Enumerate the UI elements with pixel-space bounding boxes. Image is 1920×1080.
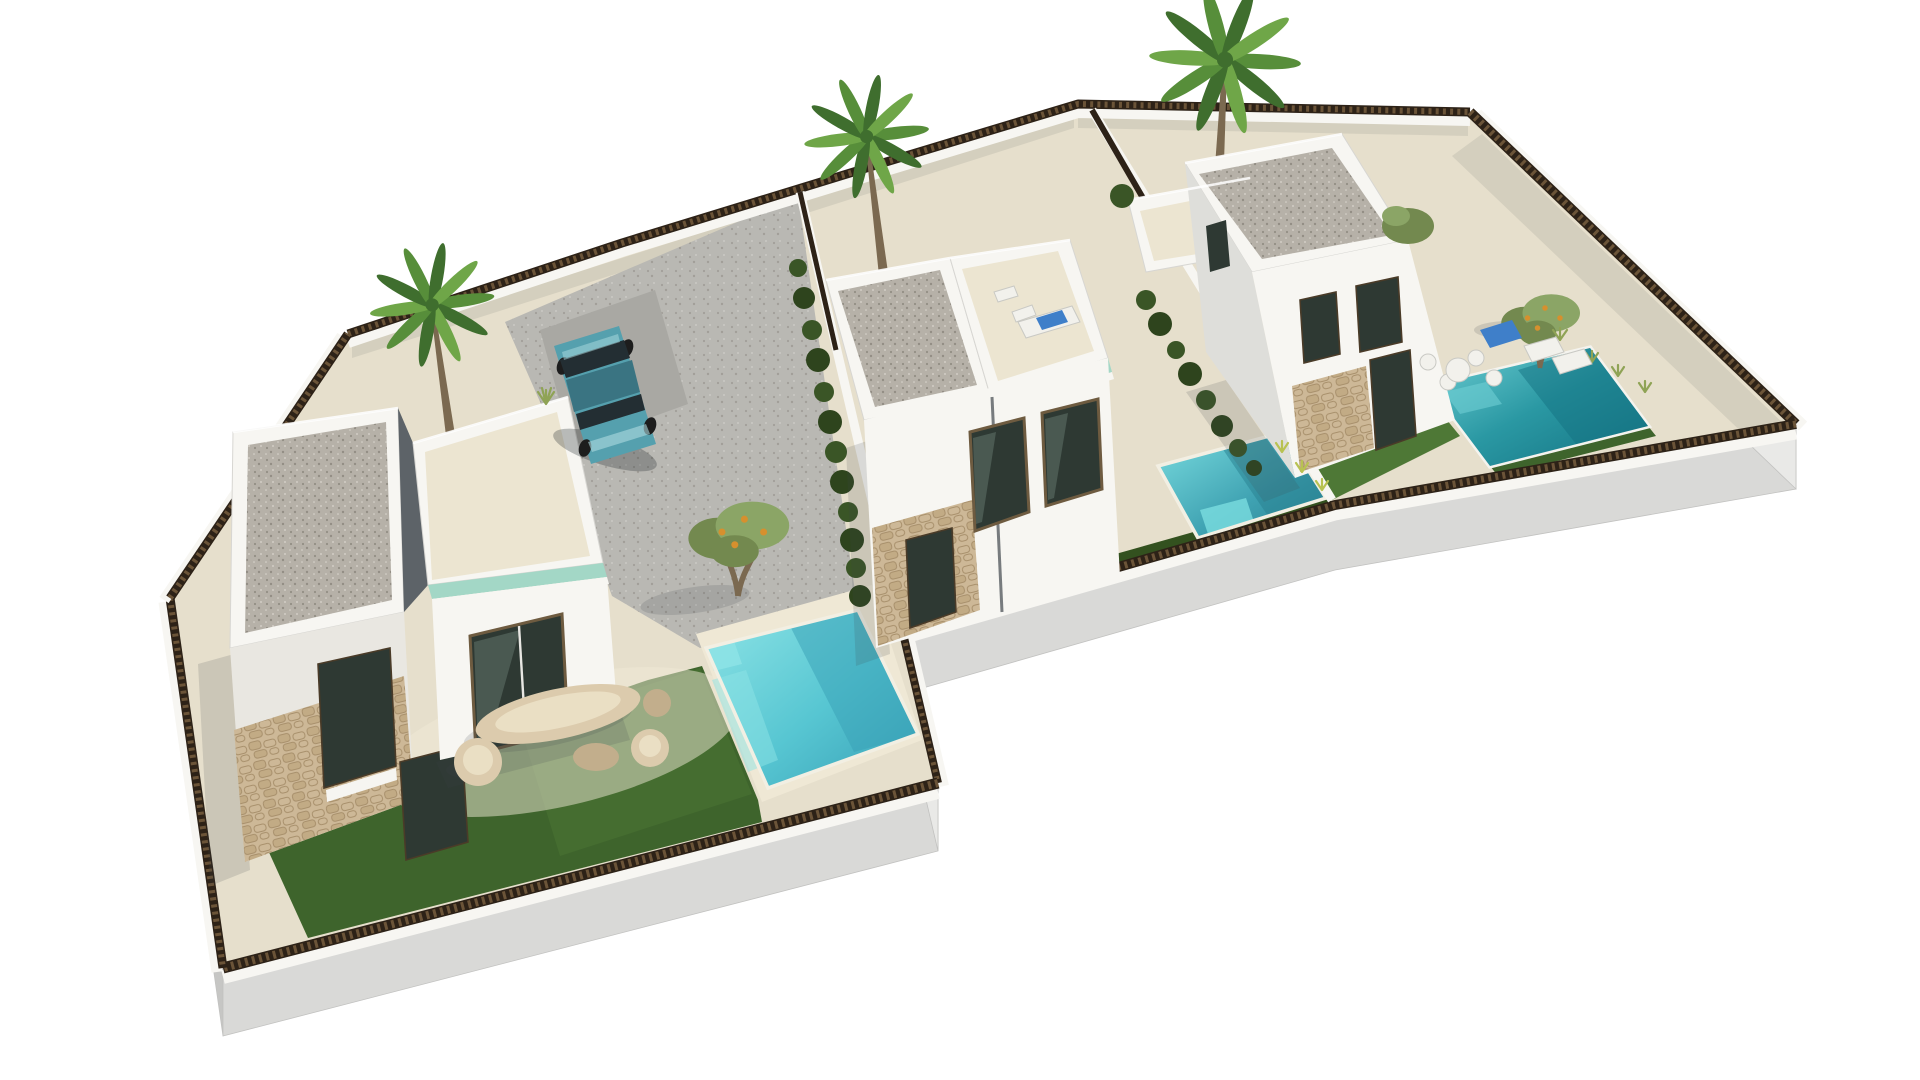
climber [1148,312,1172,336]
hedge-bush [802,320,822,340]
chair-cushion [639,735,661,757]
hedge-bush [814,382,834,402]
render-canvas [0,0,1920,1080]
ball-chair [643,689,671,717]
villa-development-render [0,0,1920,1080]
outdoor-chair [1486,370,1502,386]
hedge-bush [818,410,842,434]
bush-foliage [1382,206,1410,226]
chair-cushion [463,745,493,775]
outdoor-chair [1468,350,1484,366]
outdoor-chair [1420,354,1436,370]
hedge-bush [825,441,847,463]
villa-right-window-upper-right [1356,277,1402,352]
outdoor-table [1446,358,1470,382]
hedge-bush [806,348,830,372]
villa-left-window-upper [318,648,396,788]
hedge-bush [789,259,807,277]
villa-middle-window-lower [906,528,956,628]
climber [1167,341,1185,359]
villa-left-gravel-roof [245,422,392,633]
climber [1136,290,1156,310]
villa-right-sliding-door [1370,350,1416,450]
villa-right-window-west [1206,220,1230,272]
pouf [573,743,619,771]
villa-right-window-upper-left [1300,292,1340,363]
bush-back-middle [1110,184,1134,208]
hedge-bush [793,287,815,309]
climber [1178,362,1202,386]
